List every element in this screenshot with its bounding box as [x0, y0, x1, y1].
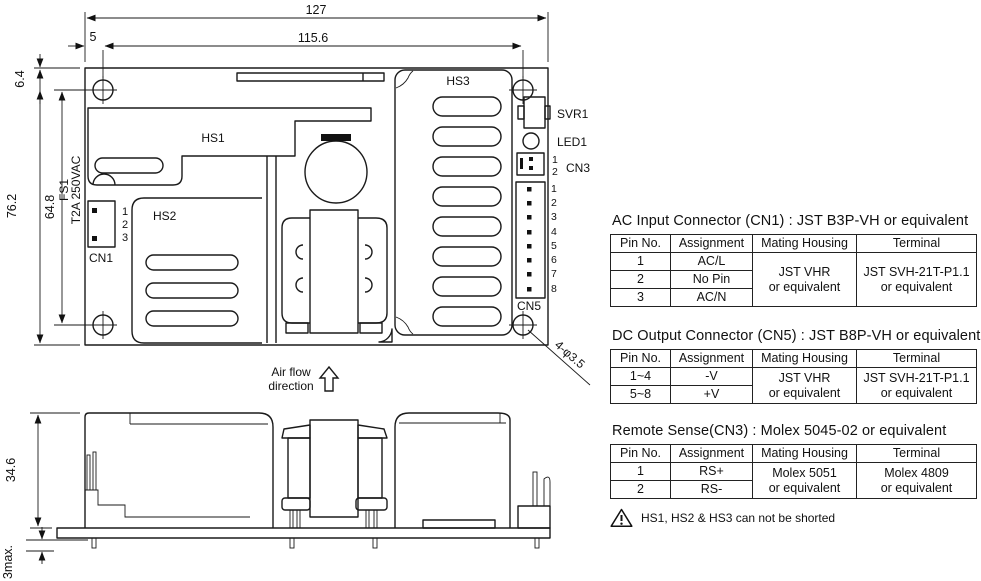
side-view: 34.6 3max. — [1, 413, 550, 579]
terminal-cell: JST SVH-21T-P1.1 or equivalent — [857, 253, 977, 307]
svr1-label: SVR1 — [557, 107, 589, 121]
cn1-label: CN1 — [89, 251, 113, 265]
cn1-pin-label: 2 — [122, 219, 128, 231]
cn1-pin-label: 1 — [122, 206, 128, 218]
capacitor-plan — [305, 134, 367, 203]
pcb-board-side — [57, 528, 550, 538]
dim-hole-span-height: 64.8 — [43, 195, 57, 219]
cn1-pin-label: 3 — [122, 232, 128, 244]
col-header: Terminal — [857, 235, 977, 253]
left-component-block — [85, 413, 273, 528]
cn5-pin-label: 6 — [551, 254, 557, 266]
transformer-side — [282, 420, 387, 528]
table-header-row: Pin No. Assignment Mating Housing Termin… — [611, 445, 977, 463]
col-header: Pin No. — [611, 350, 671, 368]
plan-view: HS1 1 2 3 CN1 HS2 — [5, 3, 590, 393]
col-header: Assignment — [671, 350, 753, 368]
pin-cell: 1~4 — [611, 368, 671, 386]
terminal-cell: Molex 4809 or equivalent — [857, 463, 977, 499]
cn5-label: CN5 — [517, 299, 541, 313]
airflow-up-arrow-icon — [320, 367, 338, 391]
terminal-cell: JST SVH-21T-P1.1 or equivalent — [857, 368, 977, 404]
mating-housing-cell: JST VHR or equivalent — [753, 368, 857, 404]
assignment-cell: +V — [671, 386, 753, 404]
cn5-pin-label: 5 — [551, 240, 557, 252]
cn5-pin-label: 2 — [551, 197, 557, 209]
pin-cell: 2 — [611, 481, 671, 499]
cn5-connector — [516, 182, 545, 298]
hs2-label: HS2 — [153, 209, 177, 223]
dim-hole-span-width: 115.6 — [298, 31, 328, 45]
table-header-row: Pin No. Assignment Mating Housing Termin… — [611, 235, 977, 253]
remote-sense-table: Pin No. Assignment Mating Housing Termin… — [610, 444, 977, 499]
cn3-pin-label: 1 — [552, 154, 558, 166]
led1-label: LED1 — [557, 135, 587, 149]
pin-cell: 1 — [611, 253, 671, 271]
dc-output-table-block: DC Output Connector (CN5) : JST B8P-VH o… — [610, 328, 981, 404]
col-header: Pin No. — [611, 445, 671, 463]
assignment-cell: -V — [671, 368, 753, 386]
cn3-connector — [517, 153, 544, 175]
cn5-pin-label: 8 — [551, 283, 557, 295]
airflow-label: direction — [268, 379, 313, 393]
col-header: Mating Housing — [753, 235, 857, 253]
ac-input-table-block: AC Input Connector (CN1) : JST B3P-VH or… — [610, 213, 981, 307]
warning-icon — [610, 508, 633, 528]
ac-input-table: Pin No. Assignment Mating Housing Termin… — [610, 234, 977, 307]
heatsink-side-block — [395, 413, 510, 528]
dc-output-table: Pin No. Assignment Mating Housing Termin… — [610, 349, 977, 404]
col-header: Pin No. — [611, 235, 671, 253]
fs1-rating-label: T2A 250VAC — [69, 155, 83, 224]
heatsink-hs3 — [395, 70, 512, 335]
cn1-connector — [88, 201, 115, 247]
pin-cell: 2 — [611, 271, 671, 289]
remote-sense-table-block: Remote Sense(CN3) : Molex 5045-02 or equ… — [610, 423, 981, 499]
transformer-plan — [282, 210, 392, 342]
dim-hole-offset-y: 6.4 — [13, 70, 27, 87]
dim-side-height: 34.6 — [4, 458, 18, 482]
cn3-pin-label: 2 — [552, 166, 558, 178]
table-row: 1~4 -V JST VHR or equivalent JST SVH-21T… — [611, 368, 977, 386]
assignment-cell: RS+ — [671, 463, 753, 481]
col-header: Assignment — [671, 235, 753, 253]
dim-overall-width: 127 — [306, 3, 327, 17]
fuse-fs1-outline — [95, 158, 163, 173]
pin-cell: 3 — [611, 289, 671, 307]
col-header: Terminal — [857, 445, 977, 463]
pin-cell: 5~8 — [611, 386, 671, 404]
col-header: Terminal — [857, 350, 977, 368]
cn5-pin-label: 3 — [551, 211, 557, 223]
ac-input-table-title: AC Input Connector (CN1) : JST B3P-VH or… — [612, 213, 981, 229]
col-header: Mating Housing — [753, 350, 857, 368]
inner-bracket — [85, 490, 250, 517]
dim-hole-offset-x: 5 — [90, 30, 97, 44]
table-row: 1 AC/L JST VHR or equivalent JST SVH-21T… — [611, 253, 977, 271]
led1-indicator — [523, 133, 539, 149]
assignment-cell: No Pin — [671, 271, 753, 289]
dc-output-table-title: DC Output Connector (CN5) : JST B8P-VH o… — [612, 328, 981, 344]
table-row: 1 RS+ Molex 5051 or equivalent Molex 480… — [611, 463, 977, 481]
assignment-cell: AC/L — [671, 253, 753, 271]
mechanical-drawing-page: HS1 1 2 3 CN1 HS2 — [0, 0, 981, 581]
output-connector-side — [518, 472, 550, 528]
remote-sense-table-title: Remote Sense(CN3) : Molex 5045-02 or equ… — [612, 423, 981, 439]
side-dimensions — [26, 413, 88, 564]
mating-housing-cell: Molex 5051 or equivalent — [753, 463, 857, 499]
pin-cell: 1 — [611, 463, 671, 481]
heatsink-hs1 — [88, 108, 371, 185]
dim-overall-height: 76.2 — [5, 194, 19, 218]
top-vent-slot — [237, 73, 384, 81]
mating-housing-cell: JST VHR or equivalent — [753, 253, 857, 307]
table-header-row: Pin No. Assignment Mating Housing Termin… — [611, 350, 977, 368]
warning-text: HS1, HS2 & HS3 can not be shorted — [641, 511, 835, 525]
cn5-pin-label: 4 — [551, 226, 557, 238]
hole-callout-label: 4-φ3.5 — [552, 338, 588, 372]
shorting-warning-note: HS1, HS2 & HS3 can not be shorted — [610, 508, 981, 528]
hs3-label: HS3 — [446, 74, 470, 88]
connector-tables: AC Input Connector (CN1) : JST B3P-VH or… — [610, 213, 981, 528]
cn3-label: CN3 — [566, 161, 590, 175]
assignment-cell: AC/N — [671, 289, 753, 307]
dim-pin-protrusion: 3max. — [1, 545, 15, 579]
airflow-label: Air flow — [271, 365, 311, 379]
cn5-pin-label: 1 — [551, 183, 557, 195]
col-header: Mating Housing — [753, 445, 857, 463]
hs1-label: HS1 — [201, 131, 225, 145]
cn5-pin-label: 7 — [551, 268, 557, 280]
plan-dimensions — [34, 12, 548, 345]
assignment-cell: RS- — [671, 481, 753, 499]
col-header: Assignment — [671, 445, 753, 463]
heatsink-hs2 — [132, 156, 276, 343]
